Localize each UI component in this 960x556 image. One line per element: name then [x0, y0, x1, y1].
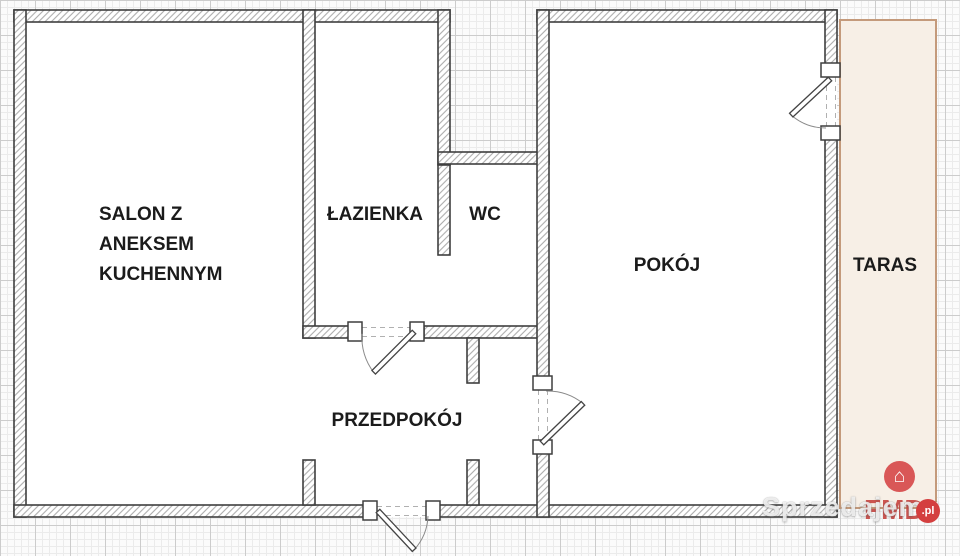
- floorplan-page: SALON Z ANEKSEM KUCHENNYM ŁAZIENKA WC PO…: [0, 0, 960, 556]
- wall-wc-top: [438, 152, 549, 164]
- label-salon: SALON Z ANEKSEM KUCHENNYM: [99, 200, 269, 290]
- wall-bottom-left: [14, 505, 367, 517]
- house-icon: ⌂: [894, 467, 905, 486]
- sprzedajemy-watermark: Sprzedajemy: [762, 492, 940, 523]
- wall-stub-entry-right: [467, 460, 479, 505]
- door-jamb: [533, 376, 552, 390]
- label-pokoj: POKÓJ: [617, 251, 717, 281]
- label-przedpokoj: PRZEDPOKÓJ: [327, 406, 467, 436]
- door-jamb: [348, 322, 362, 341]
- label-lazienka: ŁAZIENKA: [325, 200, 425, 230]
- wall-stub-wc: [467, 338, 479, 383]
- wall-pokoj-lower: [537, 452, 549, 517]
- wall-left: [14, 10, 26, 517]
- fmd-logo-circle: ⌂: [884, 461, 915, 492]
- wall-notch-vertical: [438, 10, 450, 165]
- wall-top-right: [537, 10, 837, 22]
- wall-lazienka-bottom-right: [424, 326, 549, 338]
- label-taras: TARAS: [845, 251, 925, 281]
- door-swing-arc: [414, 516, 428, 550]
- door-jamb: [821, 63, 840, 77]
- wall-stub-entry-left: [303, 460, 315, 505]
- label-wc: WC: [455, 200, 515, 230]
- wall-right-lower: [825, 139, 837, 517]
- wall-lazienka-bottom-left: [303, 326, 351, 338]
- wall-wc-divider: [438, 165, 450, 255]
- door-jamb: [363, 501, 377, 520]
- wall-right-upper: [825, 10, 837, 67]
- wall-salon-divider: [303, 10, 315, 338]
- wall-pokoj-upper: [537, 10, 549, 378]
- wall-top-left: [14, 10, 450, 22]
- fmd-pl-badge: .pl: [916, 499, 940, 523]
